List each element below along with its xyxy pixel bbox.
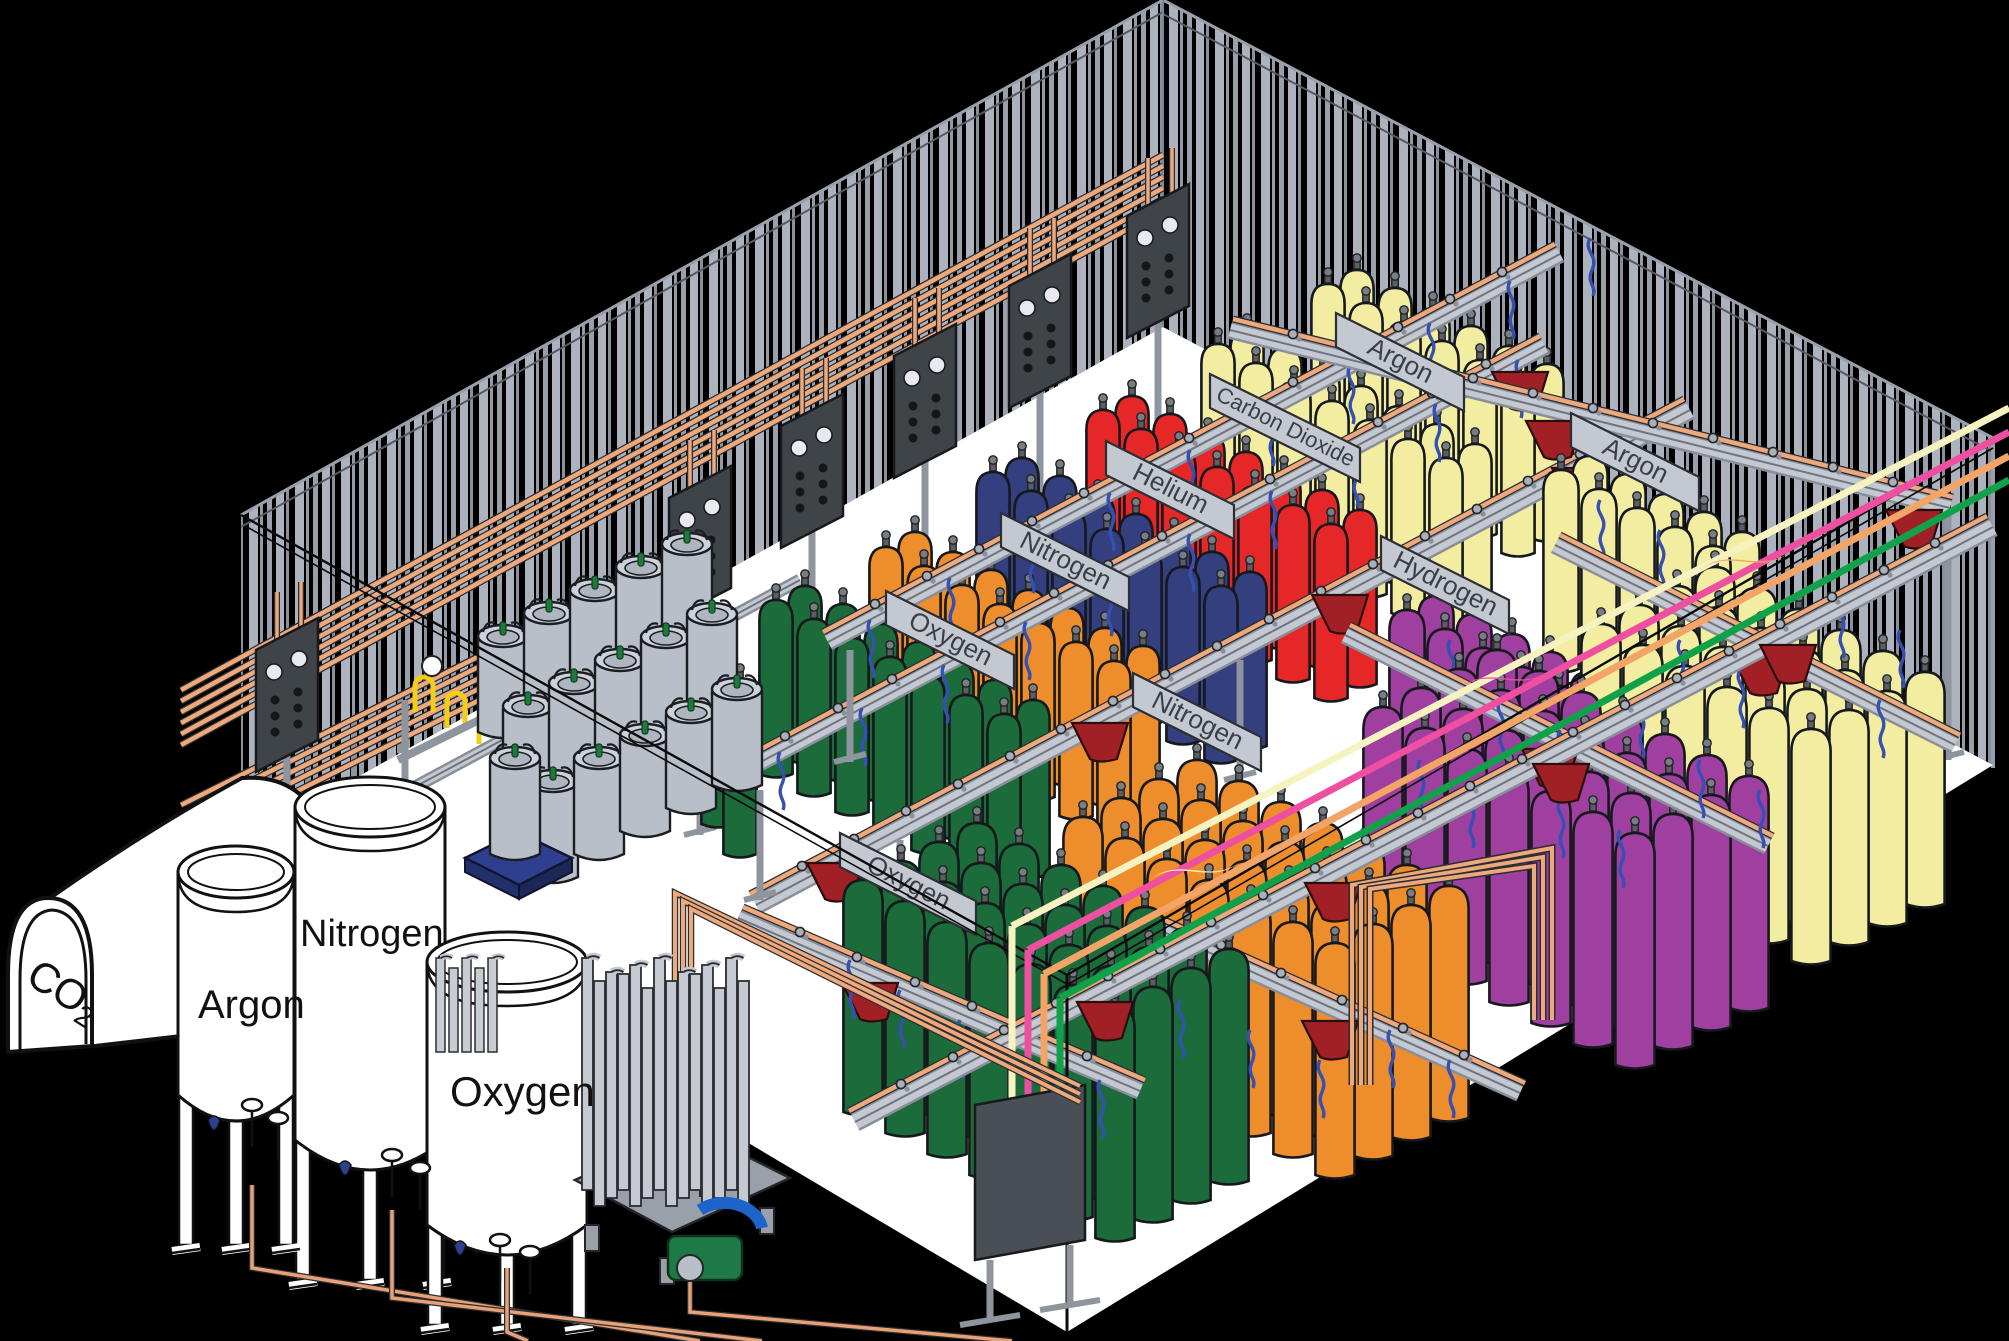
svg-text:Oxygen: Oxygen (450, 1068, 595, 1115)
svg-text:Argon: Argon (198, 983, 305, 1027)
svg-text:Nitrogen: Nitrogen (300, 913, 444, 955)
